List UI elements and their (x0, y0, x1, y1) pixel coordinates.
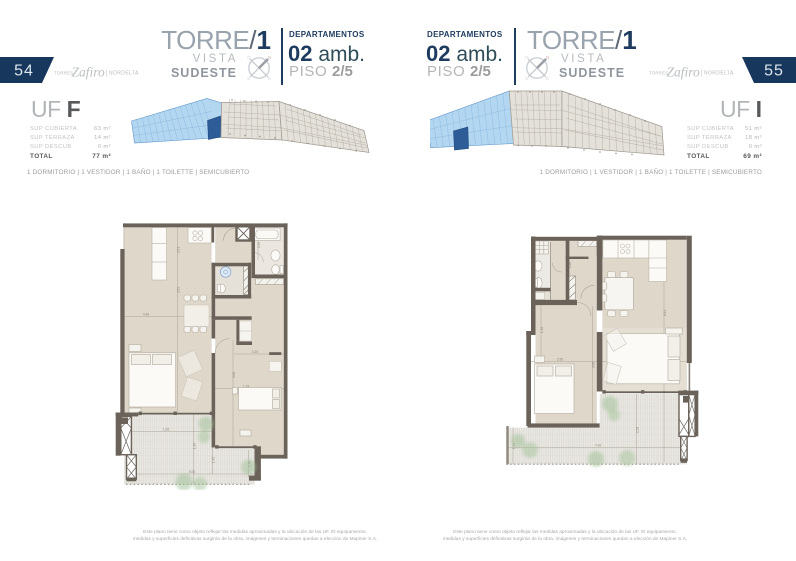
svg-text:3.66: 3.66 (592, 362, 596, 368)
svg-text:8.44: 8.44 (663, 310, 667, 316)
svg-text:NORDELTA: NORDELTA (704, 71, 734, 77)
svg-text:|: | (106, 70, 108, 77)
svg-text:1.26: 1.26 (540, 327, 544, 333)
svg-text:Zafiro: Zafiro (667, 65, 701, 80)
svg-text:|: | (701, 70, 703, 77)
svg-text:E: E (546, 76, 549, 81)
svg-text:1.45: 1.45 (212, 457, 216, 463)
svg-text:3.08: 3.08 (232, 372, 236, 378)
svg-text:54: 54 (14, 63, 34, 80)
svg-text:3.52: 3.52 (177, 287, 181, 293)
svg-text:4.46: 4.46 (143, 313, 149, 317)
svg-text:S: S (247, 76, 250, 81)
svg-text:2.28: 2.28 (636, 427, 640, 433)
svg-text:55: 55 (764, 63, 784, 80)
svg-text:S: S (525, 76, 528, 81)
svg-text:Zafiro: Zafiro (72, 65, 106, 80)
svg-text:N: N (546, 55, 549, 60)
svg-text:TORRES: TORRES (54, 71, 73, 76)
svg-text:2.45: 2.45 (257, 242, 261, 248)
svg-text:3.16: 3.16 (252, 350, 258, 354)
svg-text:TORRES: TORRES (649, 71, 668, 76)
svg-text:1.98: 1.98 (163, 427, 169, 431)
svg-text:O: O (247, 55, 251, 60)
svg-text:2.95: 2.95 (557, 357, 563, 361)
svg-text:1.90: 1.90 (193, 443, 197, 449)
svg-text:N: N (268, 55, 271, 60)
svg-text:NORDELTA: NORDELTA (109, 71, 139, 77)
svg-text:7.06: 7.06 (595, 443, 601, 447)
svg-text:5.06: 5.06 (189, 470, 195, 474)
svg-text:O: O (525, 55, 529, 60)
svg-text:2.51: 2.51 (177, 247, 181, 253)
svg-text:E: E (268, 76, 271, 81)
